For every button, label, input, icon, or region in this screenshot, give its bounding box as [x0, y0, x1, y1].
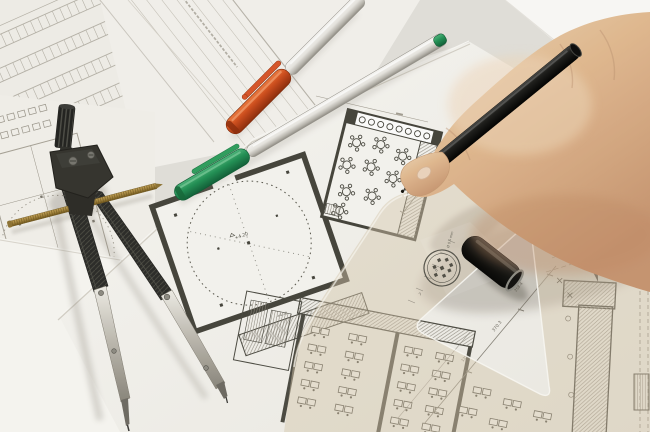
photo-canvas: +4.20 +4.20	[0, 0, 650, 432]
photo-color-cast	[0, 0, 650, 432]
screenshot-root: +4.20 +4.20	[0, 0, 650, 432]
